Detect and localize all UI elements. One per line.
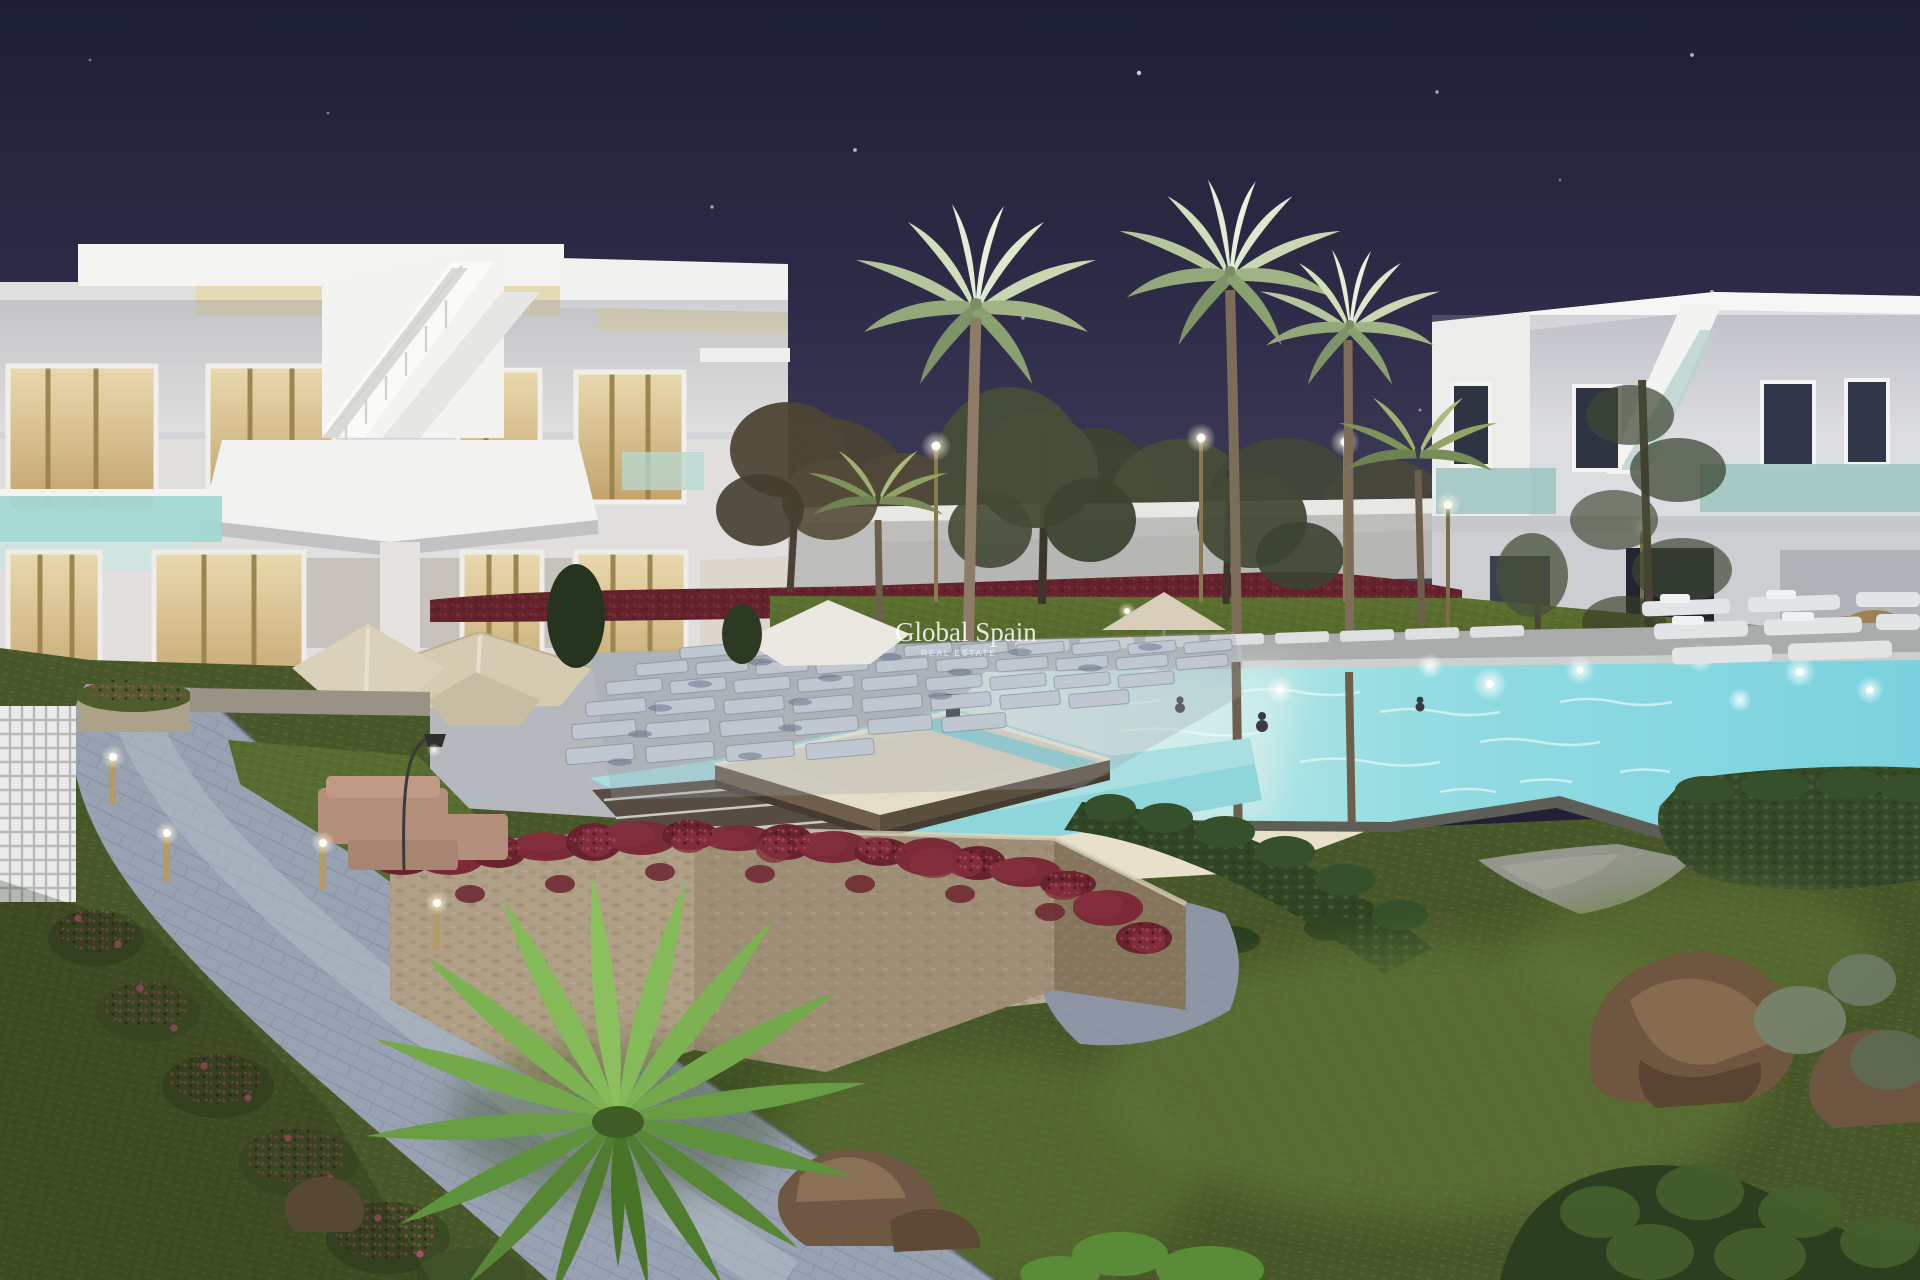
svg-text:REAL ESTATE: REAL ESTATE xyxy=(921,648,997,658)
svg-text:Global Spain: Global Spain xyxy=(895,617,1037,647)
